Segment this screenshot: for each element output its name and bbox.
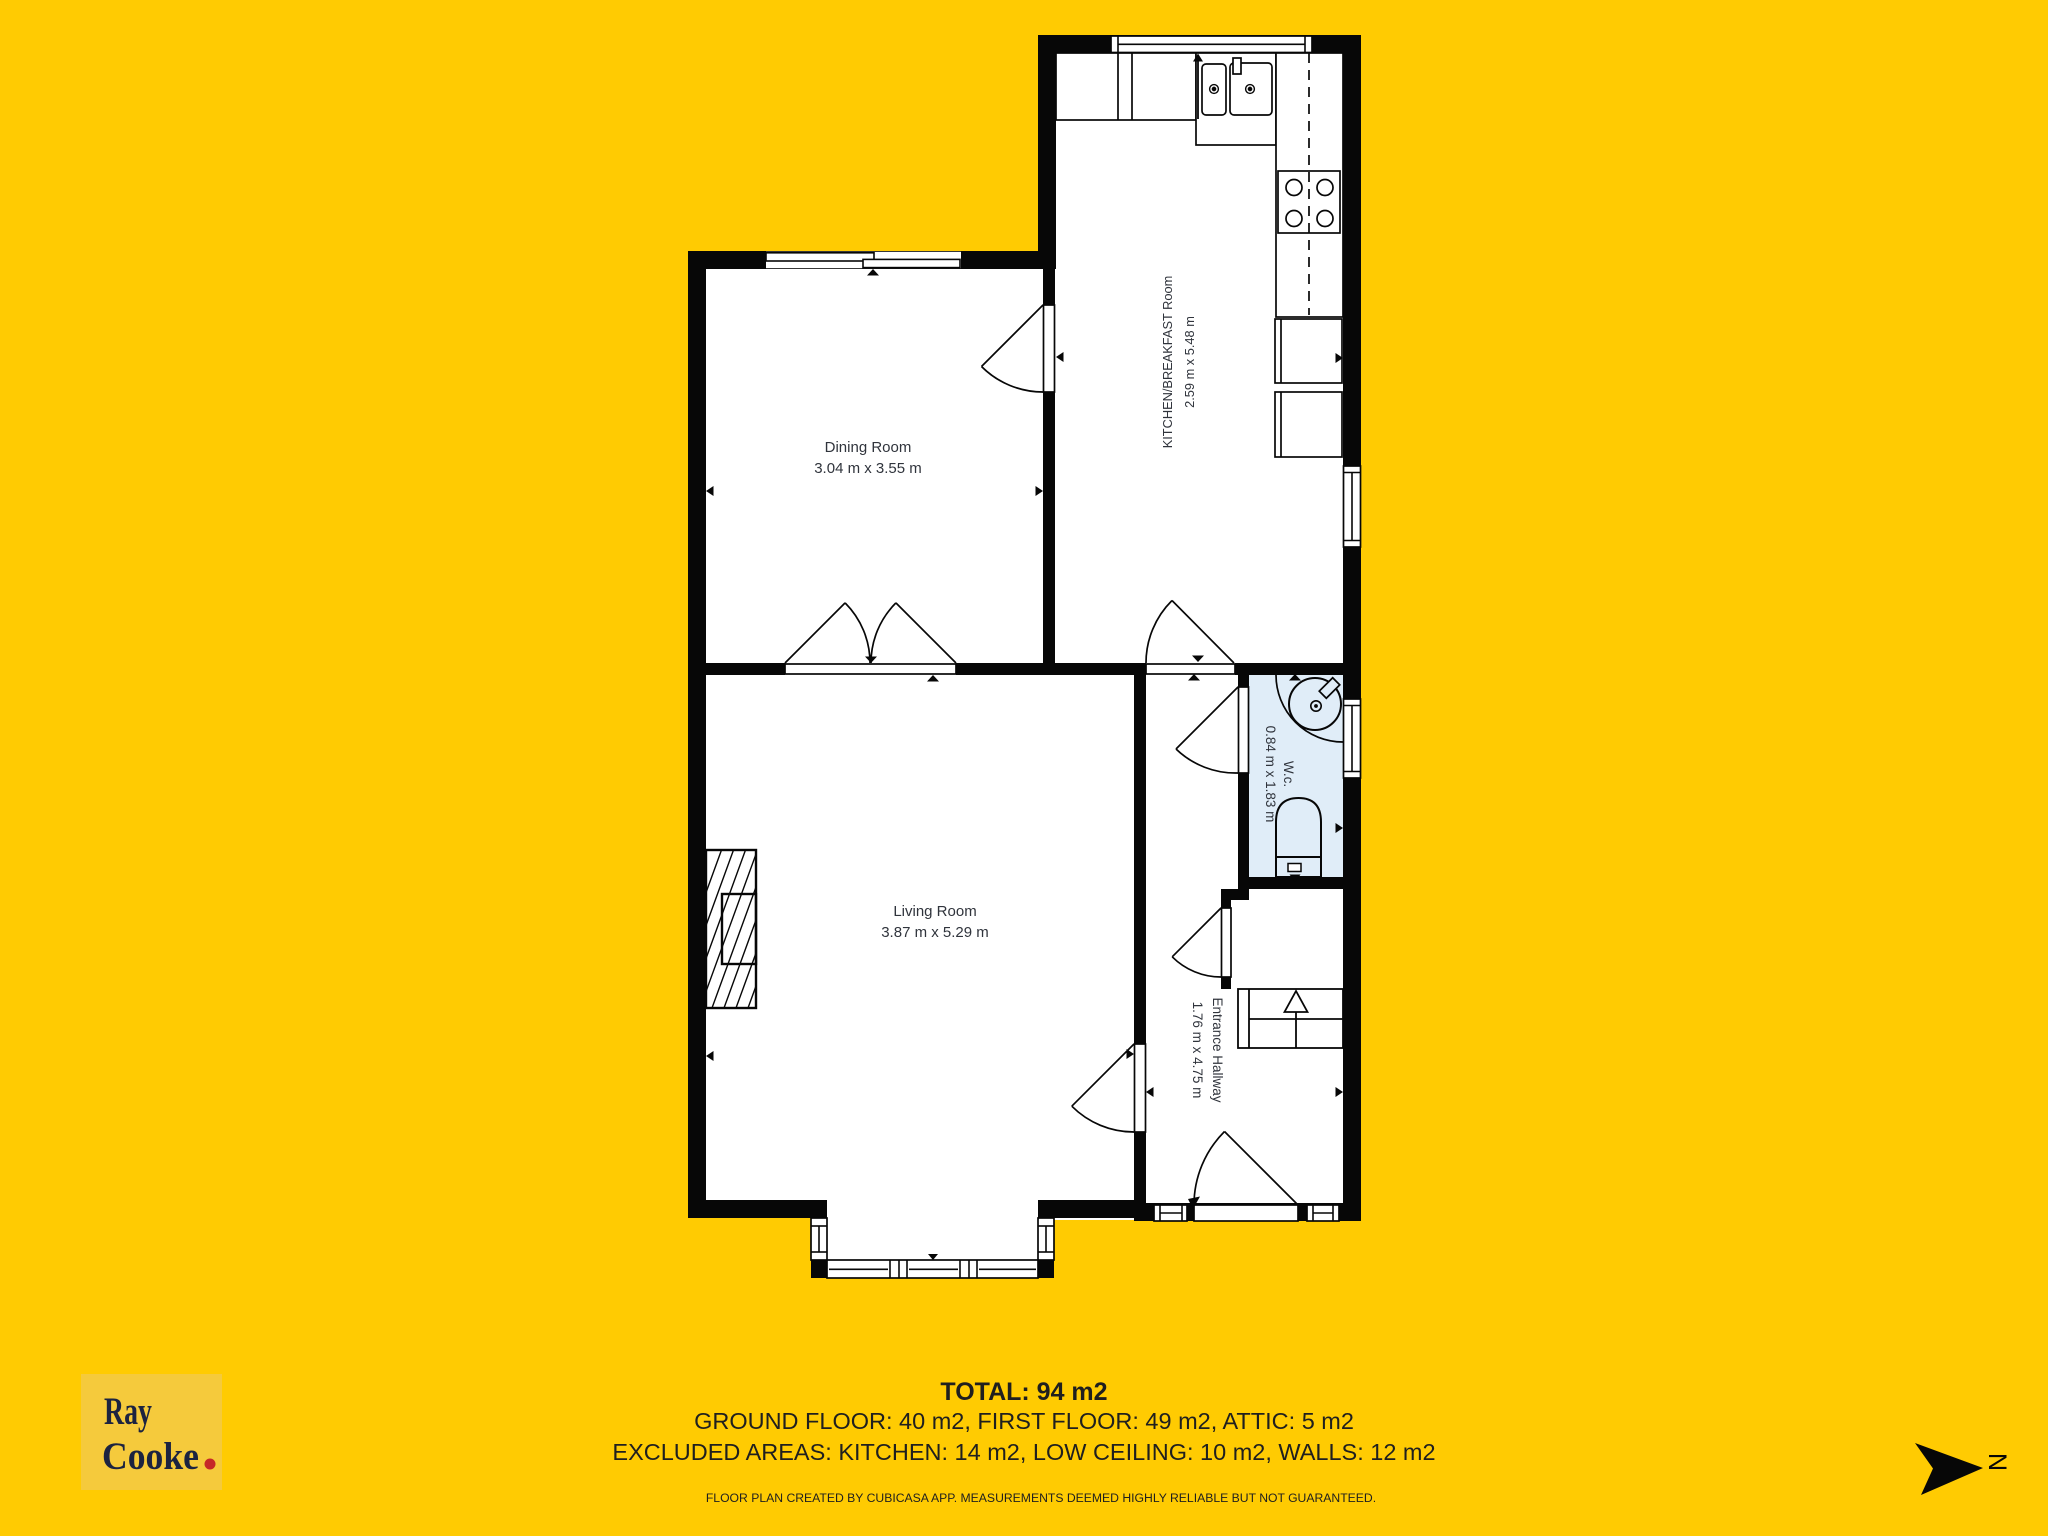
- svg-text:3.04 m x 3.55 m: 3.04 m x 3.55 m: [814, 460, 922, 477]
- svg-text:3.87 m x 5.29 m: 3.87 m x 5.29 m: [881, 924, 989, 941]
- svg-text:Ray: Ray: [104, 1390, 152, 1433]
- svg-text:KITCHEN/BREAKFAST Room: KITCHEN/BREAKFAST Room: [1160, 276, 1175, 449]
- svg-text:TOTAL: 94 m2: TOTAL: 94 m2: [940, 1378, 1107, 1406]
- svg-text:W.c.: W.c.: [1281, 761, 1296, 787]
- svg-text:Dining Room: Dining Room: [825, 439, 912, 456]
- svg-text:Entrance Hallway: Entrance Hallway: [1210, 997, 1225, 1102]
- svg-text:1.76 m x 4.75 m: 1.76 m x 4.75 m: [1190, 1002, 1205, 1099]
- svg-text:GROUND FLOOR: 40 m2, FIRST FLO: GROUND FLOOR: 40 m2, FIRST FLOOR: 49 m2,…: [694, 1408, 1354, 1434]
- svg-text:FLOOR PLAN CREATED BY CUBICASA: FLOOR PLAN CREATED BY CUBICASA APP. MEAS…: [706, 1491, 1376, 1505]
- svg-text:2.59 m x 5.48 m: 2.59 m x 5.48 m: [1182, 316, 1197, 408]
- svg-text:Cooke: Cooke: [102, 1435, 199, 1478]
- svg-text:0.84 m x 1.83 m: 0.84 m x 1.83 m: [1263, 726, 1278, 823]
- svg-text:Living Room: Living Room: [893, 903, 976, 920]
- svg-text:N: N: [1983, 1453, 2011, 1471]
- svg-text:EXCLUDED AREAS: KITCHEN: 14 m2: EXCLUDED AREAS: KITCHEN: 14 m2, LOW CEIL…: [612, 1439, 1435, 1465]
